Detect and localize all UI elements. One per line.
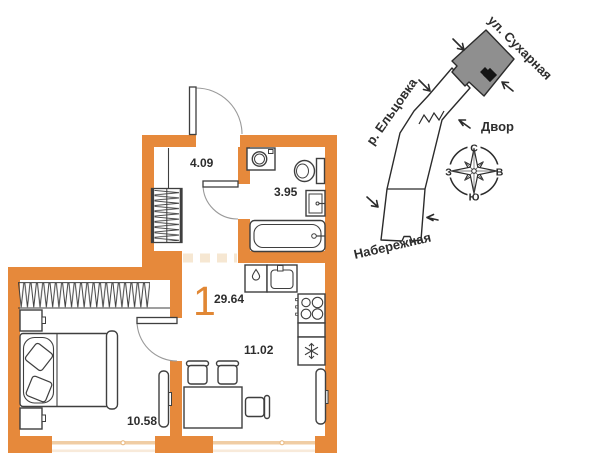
washing-machine [247,148,275,170]
nightstand [20,310,46,331]
bathroom-door-arc [203,185,238,220]
bedroom-area-label: 10.58 [127,414,157,428]
entrance-arrow-icon [459,120,470,128]
toilet [295,159,325,184]
wall-top-right-of-entrance [240,135,337,147]
entrance-door-leaf [190,87,197,135]
dining-table [184,387,242,428]
entrance-arrow-icon [453,39,464,50]
hallway-area-label: 4.09 [190,156,214,170]
radiator [18,282,170,308]
wall-junction-block [142,251,182,267]
bedroom-door-leaf [137,318,177,324]
window-marker [280,441,284,445]
bathroom-area-label: 3.95 [274,185,298,199]
wall-top-left-of-entrance [142,135,196,147]
kitchen-counter [298,323,325,337]
bathroom-door-leaf [203,181,238,187]
wall-bathroom-bottom [238,251,337,263]
compass-north-label: С [470,143,478,155]
dining-set [184,361,270,428]
courtyard-label: Двор [481,119,514,134]
apartment-plan-image: 4.09 3.95 1 29.64 11.02 10.58 ул. Сухарн… [0,0,600,463]
chair [246,398,265,417]
apartment-plan-page: 4.09 3.95 1 29.64 11.02 10.58 ул. Сухарн… [0,0,600,463]
total-area-label: 29.64 [214,292,244,306]
wardrobe [152,189,183,243]
headboard [107,331,118,409]
entrance-door-arc [196,88,242,134]
stove [296,294,325,323]
kitchen-cabinet [245,265,267,292]
living-window [213,441,315,445]
bedroom-door-arc [137,321,177,361]
bathtub [250,221,325,252]
wall-bottom-right [315,436,337,453]
rooms-count-label: 1 [193,278,216,324]
entrance-arrow-icon [427,215,438,221]
hallway [152,148,183,243]
compass-center [472,169,477,174]
wall-bedroom-door-stub [170,280,182,318]
fridge [298,337,325,365]
wall-bedroom-top [8,267,182,280]
bedroom-window-outer-line [52,450,155,453]
entrance-arrow-icon [502,82,513,91]
compass-rose: С В З Ю [442,141,506,204]
window-marker [121,441,125,445]
wall-bottom-pier [155,436,213,453]
chair [188,366,207,385]
kitchen-sink [267,265,297,292]
compass-east-label: В [496,167,504,179]
living-window-outer-line [213,450,315,453]
wall-right [325,135,337,453]
bathroom [247,148,325,252]
wall-bottom-left [8,436,52,453]
chair-back [265,396,270,419]
bathroom-sink [306,191,325,217]
bed [20,331,118,409]
bedroom [18,282,172,429]
bedroom-window [52,441,155,445]
entrance-arrow-icon [367,197,378,207]
compass-west-label: З [445,167,452,179]
compass-south-label: Ю [469,192,480,204]
chair [218,366,237,385]
kitchen-living-area-label: 11.02 [244,343,274,357]
nightstand [20,408,46,429]
site-plan: ул. Сухарная р. Ельцовка Двор Набережная [352,13,555,262]
bedroom-tv [159,371,172,427]
entrance-arrow-icon [419,80,430,91]
